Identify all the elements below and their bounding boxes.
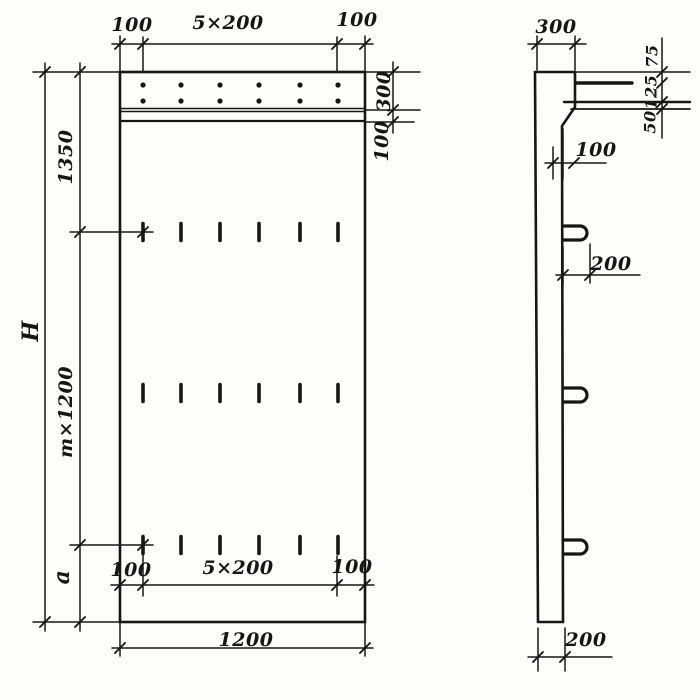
- dim-side-top-width: 300: [535, 16, 576, 38]
- dim-front-top-section: 1350: [55, 130, 77, 185]
- front-slot-rows: [143, 224, 338, 554]
- dim-front-top-right-margin: 100: [336, 9, 377, 31]
- front-panel-outline: [120, 72, 365, 622]
- dim-front-bottom-slot-spacing: 5×200: [202, 557, 273, 579]
- dim-front-total-height: H: [18, 320, 44, 341]
- dim-front-middle-section: m×1200: [55, 366, 77, 458]
- dim-front-bottom-right-margin: 100: [331, 556, 372, 578]
- dim-side-right-lower: 50: [641, 110, 660, 133]
- dim-front-bottom-left-margin: 100: [110, 559, 151, 581]
- dim-front-top-left-margin: 100: [111, 14, 152, 36]
- dim-side-step-offset: 100: [575, 139, 616, 161]
- front-hole-dots: [140, 82, 340, 103]
- side-view: [528, 36, 690, 671]
- side-ledge-lines: [564, 72, 690, 109]
- dim-side-thickness: 200: [565, 629, 606, 651]
- dim-front-top-hole-spacing: 5×200: [192, 12, 263, 34]
- dim-front-strip-height: 100: [371, 120, 393, 161]
- dim-side-loop-offset: 200: [590, 253, 631, 275]
- front-top-band-lines: [120, 109, 365, 122]
- drawing-sheet: 100 5×200 100 300 100 1350 H m×1200 a 10…: [0, 0, 700, 700]
- dim-front-overall-width: 1200: [219, 629, 274, 651]
- dim-front-bottom-section: a: [49, 570, 75, 585]
- dim-side-right-middle: 125: [642, 75, 661, 110]
- dim-side-right-upper: 75: [643, 44, 662, 67]
- drawing-canvas: [0, 0, 700, 700]
- dim-front-band-height: 300: [373, 70, 395, 111]
